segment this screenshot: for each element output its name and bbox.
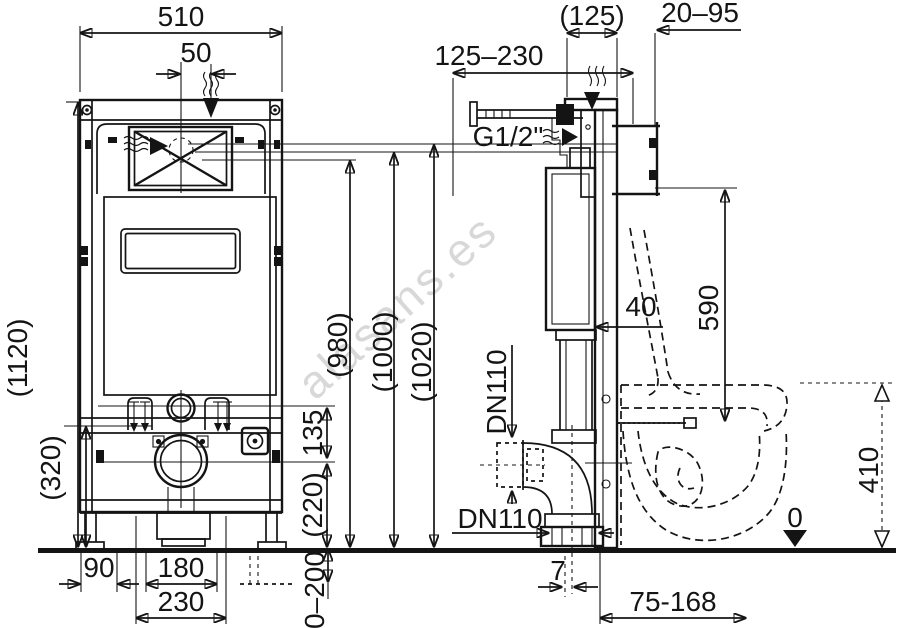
inlet-arrow-icon [562,128,578,146]
cistern-side [546,168,595,330]
dim-0-200: 0–200 [299,551,330,628]
wall-bracket [581,110,595,197]
fixing-stud-side [617,418,696,428]
protection-panel-grid [104,197,276,395]
dim-1020: (1020) [406,322,437,403]
dim-50: 50 [180,37,211,68]
dim-320: (320) [35,435,66,500]
installation-drawing: RAVAK ® [0,0,900,628]
dim-1120: (1120) [2,319,33,398]
dim-220: (220) [297,472,328,537]
dim-180: 180 [158,552,205,583]
label-g12: G1/2" [473,121,544,152]
flush-drop-pipe [556,330,596,430]
dimensions-side: (125) 20–95 125–230 G1/2" 40 590 DN110 D… [434,0,894,624]
water-connection-label: G1/2" [473,121,578,152]
front-view: RAVAK ® [76,62,296,584]
frame-rail [595,110,617,548]
technical-drawing-page: RAVAK ® [0,0,900,628]
label-floor-zero: 0 [787,502,803,533]
drain-sleeve [157,513,210,539]
dim-7: 7 [550,555,566,586]
brand-registered-mark: ® [228,235,235,245]
dim-40: 40 [625,291,656,322]
open-arrow-icon [875,531,889,547]
dim-590: 590 [693,285,724,332]
dim-75-168: 75-168 [629,586,716,617]
wall-section [612,122,660,196]
label-dn110-vertical: DN110 [481,349,512,434]
label-dn110-horizontal: DN110 [457,503,542,534]
floor-line [38,548,896,553]
dimensions-heights: (980) (1000) (1020) [322,145,437,547]
dim-125-230: 125–230 [434,40,543,71]
wc-bowl-dashed [621,385,787,545]
dim-1000: (1000) [367,312,398,393]
dim-90: 90 [83,552,114,583]
brand-logo: RAVAK ® [121,229,240,273]
dim-510: 510 [158,1,205,32]
dim-230: 230 [158,586,205,617]
dim-410: 410 [853,447,884,494]
dim-20-95: 20–95 [661,0,739,28]
open-arrow-icon [875,385,889,401]
brand-logo-text: RAVAK [129,237,228,267]
floor-datum-icon [783,530,807,547]
frame-feet [76,513,286,549]
dimensions-front: 510 50 (1120) (320) 90 180 230 0–200 135… [2,1,330,628]
dim-125: (125) [559,0,624,31]
dim-980: (980) [322,312,353,377]
dim-135: 135 [297,410,328,457]
optional-outlet-dashed [480,443,545,487]
